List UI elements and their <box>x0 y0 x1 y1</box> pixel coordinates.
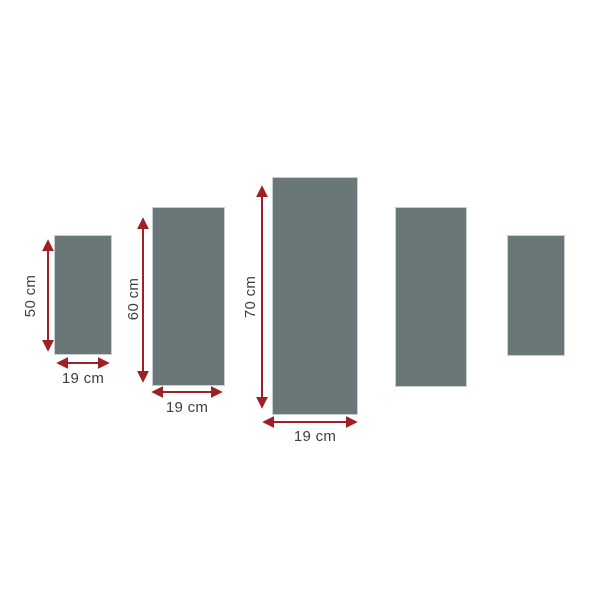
panel-3-70x19 <box>272 177 358 415</box>
width-label-panel-1: 19 cm <box>53 371 113 387</box>
height-label-panel-3: 70 cm <box>243 267 259 327</box>
panel-2-60x19 <box>152 207 225 386</box>
panel-4-60x19 <box>395 207 467 387</box>
width-label-panel-3: 19 cm <box>285 429 345 445</box>
panel-5-50x19 <box>507 235 565 356</box>
height-label-panel-2: 60 cm <box>126 269 142 329</box>
height-label-panel-1: 50 cm <box>23 266 39 326</box>
width-label-panel-2: 19 cm <box>157 400 217 416</box>
size-diagram: 50 cm 60 cm 70 cm 19 cm 19 cm 19 cm <box>0 0 600 600</box>
panel-1-50x19 <box>54 235 112 355</box>
